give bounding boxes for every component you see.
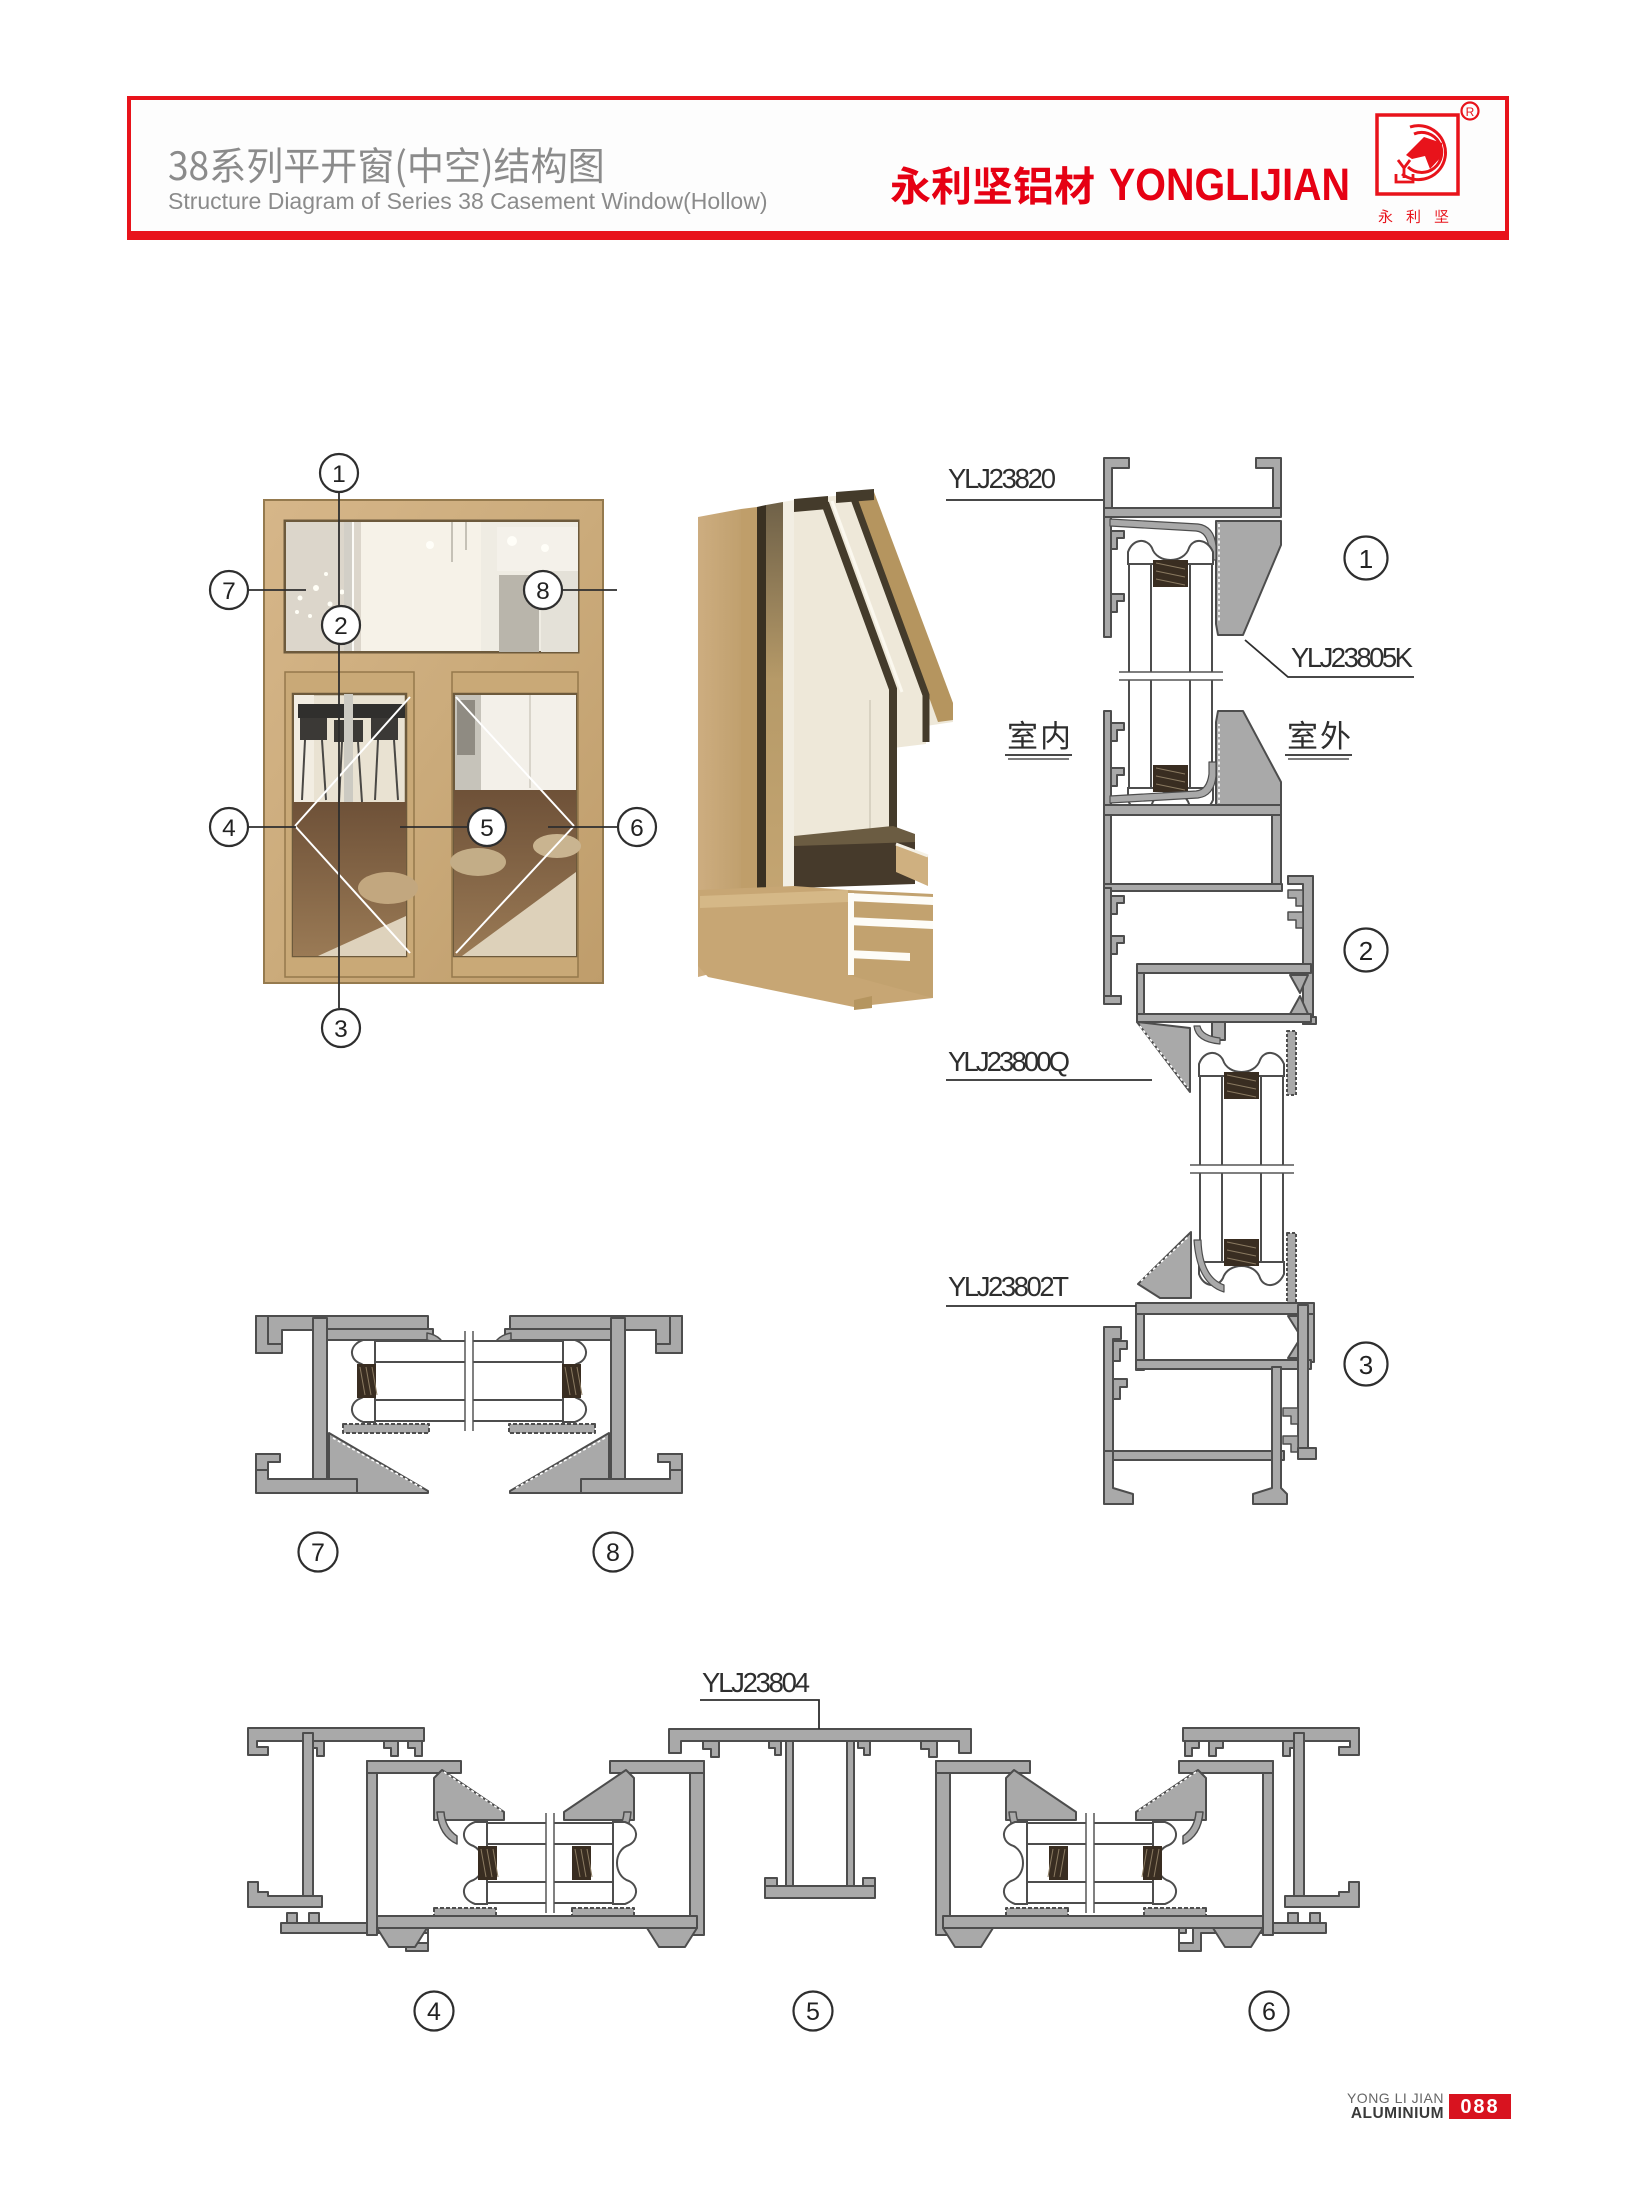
svg-text:8: 8 [536,578,550,605]
svg-text:1: 1 [332,461,346,488]
svg-text:4: 4 [222,815,236,842]
svg-text:YLJ23820: YLJ23820 [948,463,1056,494]
svg-text:7: 7 [222,578,236,605]
svg-text:4: 4 [427,1998,441,2026]
svg-text:5: 5 [806,1998,820,2026]
svg-text:088: 088 [1460,2096,1499,2118]
svg-text:ALUMINIUM: ALUMINIUM [1351,2105,1444,2122]
svg-text:3: 3 [334,1016,348,1043]
svg-text:Structure Diagram of Series 38: Structure Diagram of Series 38 Casement … [168,188,768,214]
svg-text:7: 7 [311,1539,325,1567]
svg-text:6: 6 [630,815,644,842]
svg-text:8: 8 [606,1539,620,1567]
svg-text:1: 1 [1359,544,1373,574]
svg-text:YLJ23805K: YLJ23805K [1291,642,1414,673]
svg-text:3: 3 [1359,1350,1373,1380]
svg-text:YLJ23802T: YLJ23802T [948,1271,1069,1302]
svg-text:YLJ23804: YLJ23804 [702,1667,810,1698]
svg-text:2: 2 [334,613,348,640]
svg-text:2: 2 [1359,936,1373,966]
svg-text:6: 6 [1262,1998,1276,2026]
svg-text:5: 5 [480,815,494,842]
svg-text:YONGLIJIAN: YONGLIJIAN [1109,159,1350,210]
svg-text:YONG LI JIAN: YONG LI JIAN [1347,2090,1444,2106]
svg-text:YLJ23800Q: YLJ23800Q [948,1046,1070,1077]
